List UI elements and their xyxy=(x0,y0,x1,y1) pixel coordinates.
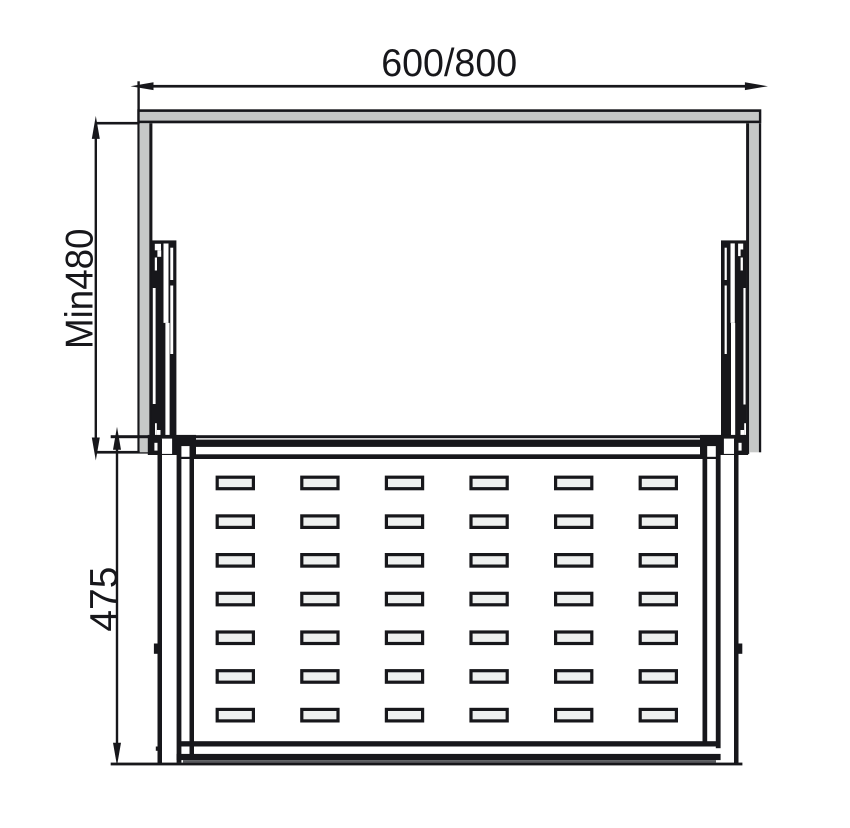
svg-text:Min480: Min480 xyxy=(58,229,101,350)
svg-text:600/800: 600/800 xyxy=(381,42,517,85)
svg-text:475: 475 xyxy=(83,567,126,632)
